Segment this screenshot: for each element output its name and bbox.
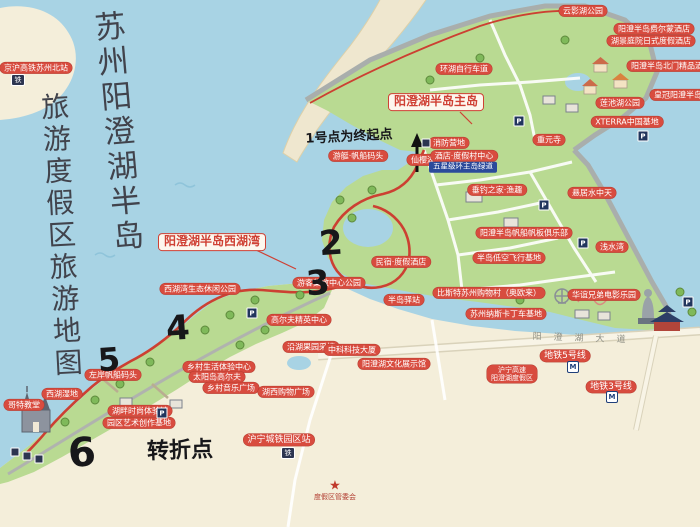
label-sun-island-golf: 太阳岛高尔夫 bbox=[189, 371, 245, 382]
train-icon: 铁 bbox=[11, 74, 25, 86]
label-fire-camp: 消防营地 bbox=[429, 137, 469, 148]
label-hotel-1: 阳澄半岛费尔蒙酒店 bbox=[614, 23, 694, 34]
label-metro-line-5: 地铁5号线 bbox=[540, 350, 590, 362]
label-yacht-marina: 游艇·帆船码头 bbox=[329, 150, 388, 161]
parking-icon: P bbox=[514, 116, 525, 127]
note-turning-point: 转折点 bbox=[147, 437, 214, 465]
parking-icon: P bbox=[638, 131, 649, 142]
poi-icon bbox=[35, 455, 44, 464]
label-huayi-movie-park: 华谊兄弟电影乐园 bbox=[568, 289, 640, 300]
label-flight-base: 半岛低空飞行基地 bbox=[473, 252, 545, 263]
label-art-base: 园区艺术创作基地 bbox=[103, 417, 175, 428]
metro-icon: M bbox=[567, 361, 579, 373]
label-golf-elite-center: 高尔夫精英中心 bbox=[267, 314, 331, 325]
label-karting-base: 苏州纳斯卡丁车基地 bbox=[466, 308, 546, 319]
label-shopping-village: 比斯特苏州购物村（奥欧来） bbox=[433, 287, 545, 298]
note-resort-committee: 度假区管委会 bbox=[314, 493, 356, 501]
label-hotel-4: 皇冠阳澄半岛酒店 bbox=[650, 89, 700, 100]
route-number-3: 3 bbox=[305, 264, 331, 305]
label-peninsula-stop: 半岛驿站 bbox=[384, 294, 424, 305]
route-number-6: 6 bbox=[67, 429, 98, 477]
label-yunying-lake-park: 云影湖公园 bbox=[559, 5, 607, 16]
label-resort-center: 酒店·度假村中心 bbox=[431, 150, 498, 161]
label-intercity-rail-station: 沪宁城铁园区站 bbox=[243, 434, 314, 446]
parking-icon: P bbox=[157, 408, 168, 419]
label-homestay-hotels: 民宿·度假酒店 bbox=[372, 256, 431, 267]
poi-icon bbox=[23, 452, 32, 461]
label-fishing-home: 垂钓之家·渔趣 bbox=[468, 184, 527, 195]
star-icon: ★ bbox=[329, 479, 341, 494]
parking-icon: P bbox=[578, 238, 589, 249]
label-tech-tower: 中科科技大厦 bbox=[324, 344, 380, 355]
label-water-villas: 悬居水中天 bbox=[568, 187, 616, 198]
label-gaotie-north-station: 京沪高铁苏州北站 bbox=[0, 62, 72, 73]
label-west-shopping-plaza: 湖西购物广场 bbox=[258, 386, 314, 397]
label-music-plaza: 乡村音乐广场 bbox=[203, 382, 259, 393]
label-main-island: 阳澄湖半岛主岛 bbox=[388, 93, 484, 111]
train-icon: 铁 bbox=[281, 447, 295, 459]
label-gothic-church: 哥特教堂 bbox=[4, 399, 44, 410]
label-shallow-bay: 浅水湾 bbox=[596, 241, 628, 252]
label-xterra-china-base: XTERRA中国基地 bbox=[591, 116, 663, 127]
label-west-lake-bay: 阳澄湖半岛西湖湾 bbox=[158, 233, 266, 251]
label-westbay-eco-park: 西湖湾生态休闲公园 bbox=[160, 283, 240, 294]
parking-icon: P bbox=[683, 297, 694, 308]
label-chongyuan-temple: 重元寺 bbox=[533, 134, 565, 145]
metro-icon: M bbox=[606, 391, 618, 403]
label-lakeside-bike-path: 环湖自行车道 bbox=[436, 63, 492, 74]
label-sailing-club: 阳澄半岛帆船帆板俱乐部 bbox=[476, 227, 572, 238]
parking-icon: P bbox=[247, 308, 258, 319]
tourist-map: 苏州阳澄湖半岛 旅游度假区旅游地图 京沪高铁苏州北站云影湖公园阳澄半岛费尔蒙酒店… bbox=[0, 0, 700, 527]
route-number-2: 2 bbox=[318, 224, 344, 265]
poi-icon bbox=[11, 448, 20, 457]
label-culture-hall: 阳澄湖文化展示馆 bbox=[358, 358, 430, 369]
label-lianchi-lake-park: 莲池湖公园 bbox=[596, 97, 644, 108]
label-greenway: 五星级环主岛绿道 bbox=[429, 162, 497, 173]
pond bbox=[287, 356, 311, 370]
label-west-lake-wetland: 西湖湿地 bbox=[42, 388, 82, 399]
route-number-4: 4 bbox=[165, 309, 191, 350]
label-hotel-2: 湖景庭院日式度假酒店 bbox=[607, 35, 695, 46]
parking-icon: P bbox=[539, 200, 550, 211]
poi-icon bbox=[422, 139, 431, 148]
route-number-5: 5 bbox=[97, 341, 122, 379]
ferris-wheel-icon bbox=[555, 289, 569, 303]
label-huning-expressway: 沪宁高速 阳澄湖度假区 bbox=[487, 365, 537, 383]
label-hotel-3: 阳澄半岛北门精品酒店 bbox=[627, 60, 700, 71]
